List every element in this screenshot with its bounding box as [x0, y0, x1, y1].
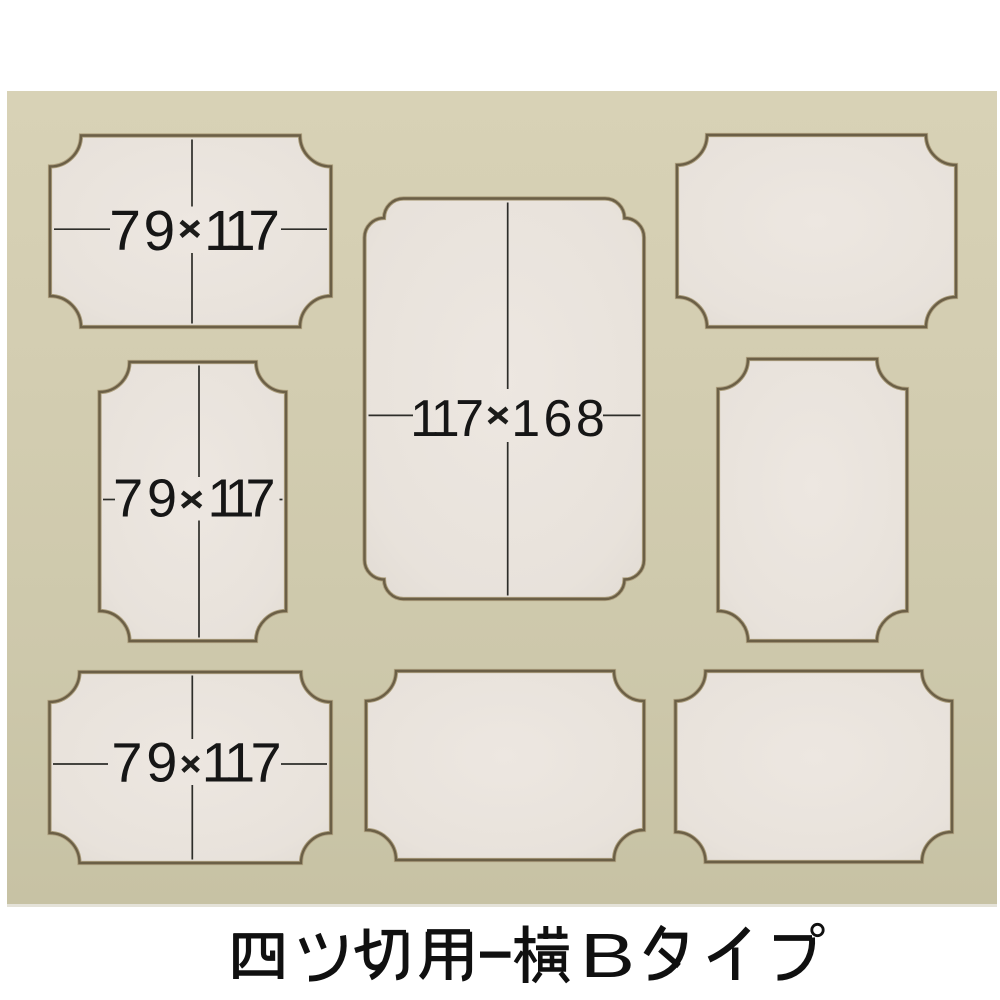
svg-text:168: 168	[511, 390, 605, 448]
svg-text:117: 117	[202, 731, 282, 794]
svg-text:117: 117	[208, 469, 276, 529]
svg-text:117: 117	[410, 390, 484, 448]
svg-text:B: B	[580, 921, 635, 991]
svg-text:117: 117	[204, 199, 280, 263]
